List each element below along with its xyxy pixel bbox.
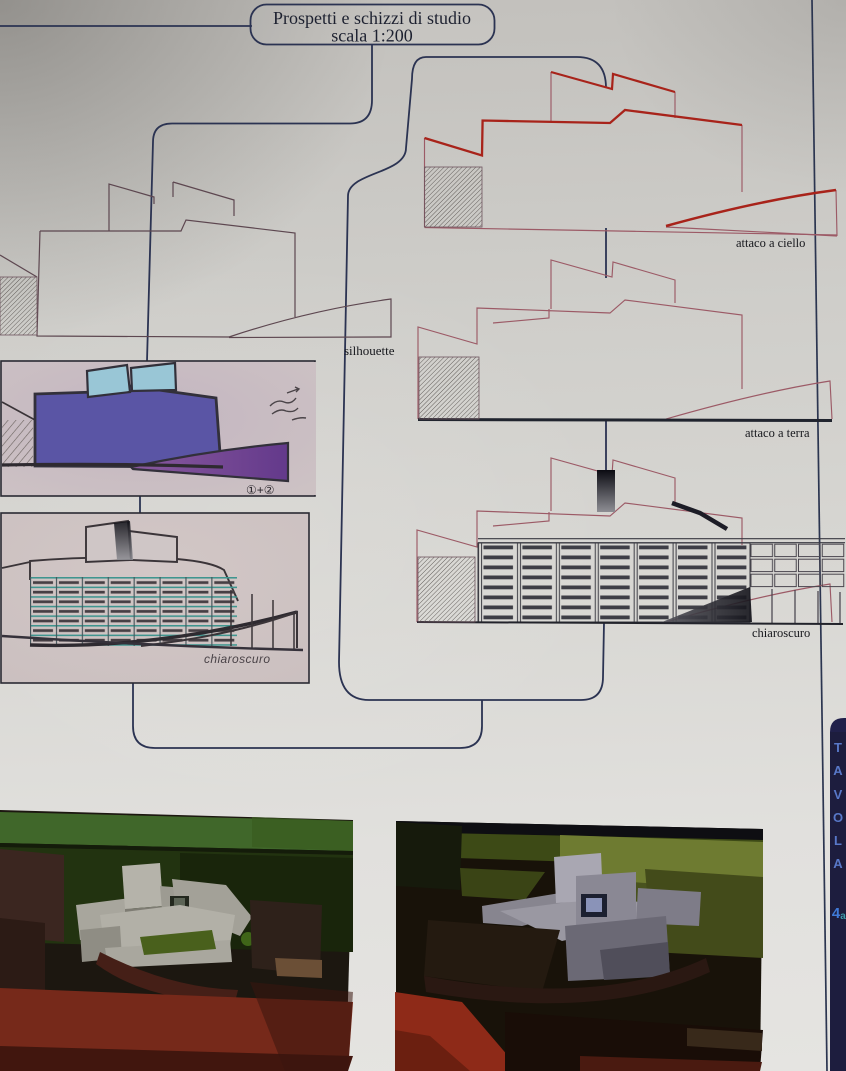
svg-text:a: a	[840, 911, 846, 922]
svg-text:scala 1:200: scala 1:200	[331, 26, 412, 46]
svg-text:O: O	[833, 810, 843, 825]
svg-text:attaco a terra: attaco a terra	[745, 426, 810, 440]
svg-text:T: T	[834, 740, 842, 755]
svg-text:silhouette: silhouette	[344, 343, 395, 358]
svg-text:chiaroscuro: chiaroscuro	[204, 652, 270, 666]
svg-text:①+②: ①+②	[246, 483, 275, 497]
svg-text:L: L	[834, 833, 842, 848]
svg-text:attaco a ciello: attaco a ciello	[736, 236, 805, 250]
svg-text:A: A	[833, 763, 843, 778]
svg-text:chiaroscuro: chiaroscuro	[752, 626, 810, 640]
svg-text:A: A	[833, 856, 843, 871]
svg-text:V: V	[834, 787, 843, 802]
